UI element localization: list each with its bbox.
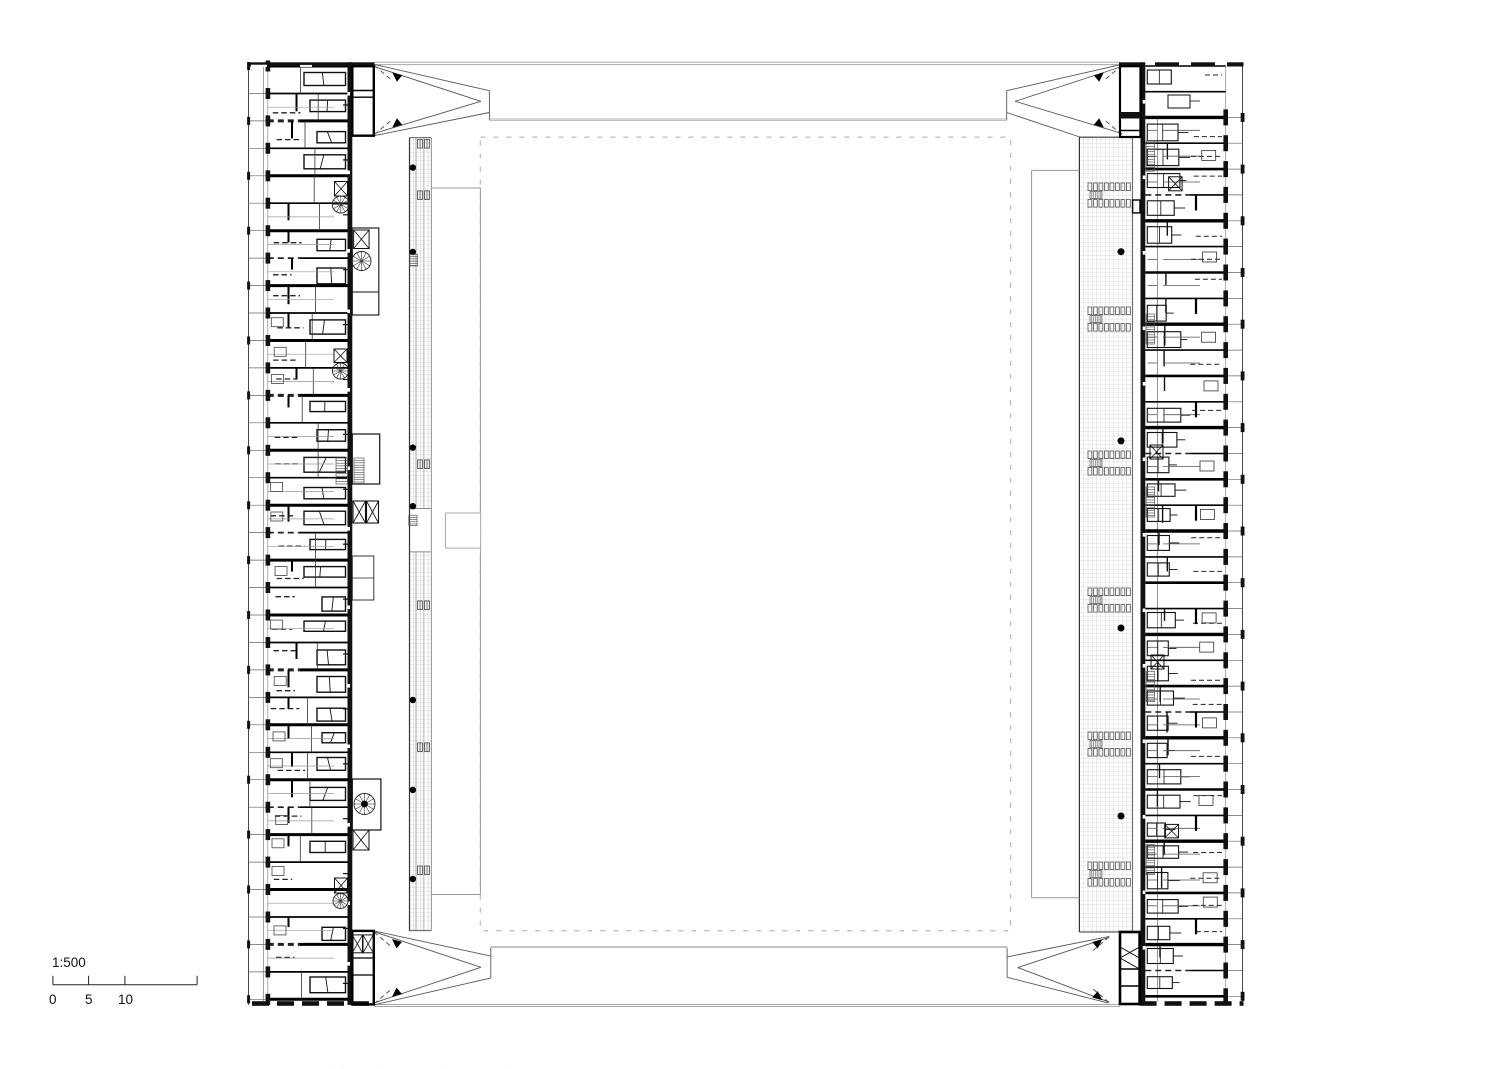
svg-text:10: 10 xyxy=(118,992,133,1007)
svg-text:5: 5 xyxy=(85,992,93,1007)
svg-text:0: 0 xyxy=(49,992,57,1007)
svg-text:1:500: 1:500 xyxy=(52,955,86,970)
